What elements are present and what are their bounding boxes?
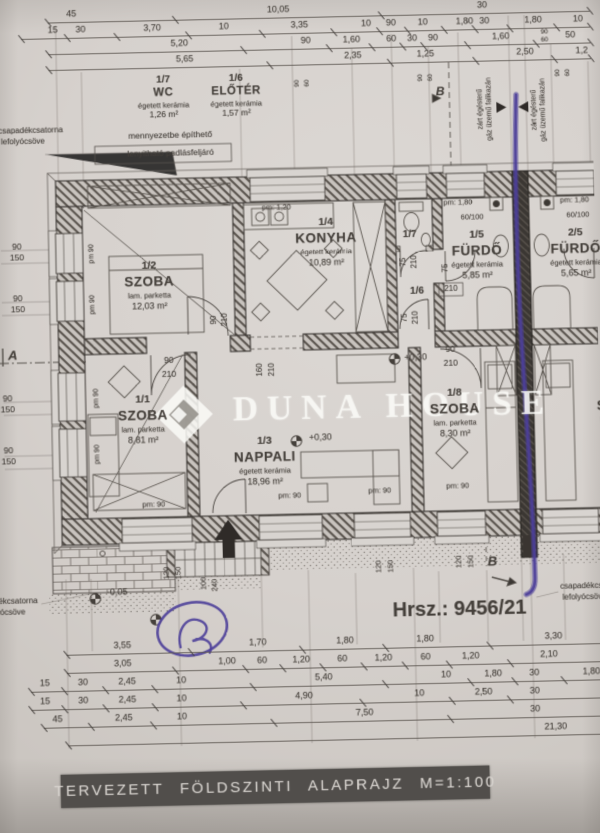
window-dim: 90 <box>4 446 14 455</box>
door-dim: 210 <box>443 358 457 367</box>
dimension-value: 3,70 <box>143 24 161 33</box>
drawing-title: TERVEZETT FÖLDSZINTI ALAPRAJZ M=1:100 <box>54 773 497 800</box>
dimension-value: 45 <box>66 10 76 19</box>
dimension-value: 5,65 <box>176 55 194 64</box>
dimension-value: 2,45 <box>119 695 137 704</box>
room-area: 8,30 m² <box>440 429 471 439</box>
room-area: 1,26 m² <box>149 110 178 119</box>
room-name: SZOBA <box>597 398 600 413</box>
sill-height: pm: 90 <box>368 486 391 494</box>
dimension-value: 30 <box>407 34 417 43</box>
door-dim: 75 <box>441 264 449 273</box>
room-name: SZOBA <box>124 274 174 289</box>
window-dim: 90 <box>555 69 562 76</box>
door-dim: 90 <box>164 356 174 365</box>
door-dim: 210 <box>162 369 176 378</box>
note-drainpipe-topleft-1: csapadékcsatorna <box>0 126 63 135</box>
dimension-value: 4,90 <box>295 691 313 700</box>
step-dim: 100 <box>199 577 207 590</box>
room-number-16: 1/6 <box>410 287 424 297</box>
section-marker-b-bottom: B <box>488 554 498 567</box>
dimension-value: 10,05 <box>267 5 290 14</box>
dimension-value: 5,40 <box>315 673 333 682</box>
dimension-value: 3,30 <box>545 631 563 640</box>
window-dim: 90 <box>541 29 548 36</box>
dimension-value: 2,10 <box>540 650 558 659</box>
note-drainpipe-bottomright-1: csapadékcsatorna <box>560 581 600 590</box>
plan-sheet: DUNA HOUSE csapadékcsatornalefolyócsövem… <box>0 0 600 833</box>
room-number: 1/4 <box>318 217 333 228</box>
dimension-value: 7,50 <box>356 708 374 717</box>
dimension-value: 45 <box>52 715 62 724</box>
door-dim: 210 <box>221 313 229 326</box>
dimension-value: 2,45 <box>118 677 136 686</box>
wall-opening-dashed <box>250 336 303 349</box>
room-name: KONYHA <box>295 230 357 245</box>
room-material: égetett kerámia <box>550 258 600 267</box>
dimension-value: 90 <box>301 36 311 45</box>
room-number: 1/3 <box>257 435 272 446</box>
window-dim: 150 <box>467 555 475 568</box>
door-dim: 210 <box>410 255 418 268</box>
dimension-value: 1,70 <box>249 638 267 647</box>
room-material: égetett kerámia <box>239 466 291 475</box>
door-dim: 160 <box>256 363 264 377</box>
room-material: lam. parketta <box>433 418 477 426</box>
sill-height: pm 90 <box>93 389 100 409</box>
sill-height: pm: 1,20 <box>262 203 291 211</box>
dimension-value: 15 <box>48 26 58 35</box>
window-dim: 150 <box>174 567 182 580</box>
note-drainpipe-bottomleft-1: csapadékcsatorna <box>0 597 38 606</box>
room-area: 12,03 m² <box>132 302 168 312</box>
note-drainpipe-topleft-2: lefolyócsöve <box>1 138 45 147</box>
room-area: 10,89 m² <box>309 258 345 268</box>
window-dim: 150 <box>10 253 24 262</box>
sill-height: pm 90 <box>88 244 95 264</box>
room-number: 2/5 <box>568 227 583 238</box>
room-number: 1/7 <box>156 75 170 85</box>
room-name: ELŐTÉR <box>211 86 261 98</box>
room-name: SZOBA <box>430 401 480 416</box>
dimension-value: 1,60 <box>343 35 361 44</box>
note-boiler-right-1: zárt égésterű <box>530 90 538 131</box>
sill-height: pm 90 <box>94 445 101 465</box>
dimension-value: 5,20 <box>170 39 188 48</box>
door-dim: 75 <box>399 258 407 267</box>
dimension-value: 60 <box>337 654 347 663</box>
dimension-value: 1,80 <box>416 634 434 643</box>
window-dim: 90 <box>418 74 425 81</box>
dimension-value: 30 <box>78 696 88 705</box>
room-number: 1/1 <box>135 394 150 405</box>
note-attic-1: mennyezetbe építhető <box>128 130 212 140</box>
dimension-value: 10 <box>418 18 428 27</box>
room-area: 5,85 m² <box>462 271 493 281</box>
dimension-value: 30 <box>530 704 540 713</box>
dimension-value: 1,80 <box>484 669 502 678</box>
sill-height: pm 90 <box>89 295 96 315</box>
dimension-value: 2,50 <box>516 47 534 56</box>
dimension-value: 30 <box>479 16 489 25</box>
dimension-value: 10 <box>177 712 187 721</box>
window-dim: 60 <box>428 74 435 81</box>
window-dim: 60 <box>565 69 572 76</box>
room-name: SZOBA <box>118 408 168 423</box>
dimension-value: 60 <box>420 652 430 661</box>
section-marker-b-top: B <box>436 85 445 97</box>
window-dim: 150 <box>1 405 15 414</box>
sill-height: pm: 1,80 <box>560 196 589 204</box>
room-area: 5,65 m² <box>561 268 592 278</box>
floorplan-photo: DUNA HOUSE csapadékcsatornalefolyócsövem… <box>0 0 600 833</box>
dimension-value: 1,60 <box>492 32 510 41</box>
dimension-value: 1,80 <box>456 17 474 26</box>
dimension-value: 50 <box>565 30 575 39</box>
dimension-value: 15 <box>40 679 50 688</box>
room-number: 1/6 <box>229 74 243 84</box>
step-dim: 240 <box>211 579 219 592</box>
level-mark: +0,30 <box>404 353 427 362</box>
window-dim: 150 <box>386 560 394 573</box>
plot-number: Hrsz.: 9456/21 <box>392 597 526 620</box>
window-dim: 150 <box>2 457 16 466</box>
dimension-value: 1,25 <box>417 49 435 58</box>
room-name: WC <box>153 87 173 99</box>
window-dim: 150 <box>11 305 25 314</box>
note-drainpipe-bottomright-2: lefolyócsöve <box>562 593 600 602</box>
note-attic-2: lenyitható padlásfeljáró <box>127 148 214 158</box>
room-number: 1/5 <box>469 229 484 240</box>
dimension-value: 21,30 <box>544 722 567 732</box>
window-dim: 120 <box>374 560 382 573</box>
door-dim: 210 <box>268 363 276 377</box>
extension-lines <box>0 14 600 750</box>
dimension-value: 15 <box>40 697 50 706</box>
window-dim: 120 <box>162 567 170 580</box>
door-dim: 90 <box>446 344 456 353</box>
dimension-value: 10 <box>361 19 371 28</box>
room-name: NAPPALI <box>234 449 296 464</box>
window-dim: 90 <box>3 394 13 403</box>
door-dim: 75 <box>401 313 409 322</box>
dimension-value: 90 <box>428 33 438 42</box>
dimension-value: 30 <box>529 668 539 677</box>
dimension-value: 60 <box>386 34 396 43</box>
dimension-value: 1,00 <box>218 657 236 666</box>
room-material: égetett kerámia <box>451 260 503 269</box>
room-material: lam. parketta <box>121 425 165 433</box>
dimension-value: 10 <box>176 694 186 703</box>
dimension-value: 10 <box>414 689 424 698</box>
dimension-value: 1,20 <box>375 653 393 662</box>
dimension-value: 30 <box>477 1 487 10</box>
dimension-value: 2,45 <box>115 713 133 722</box>
sill-height: pm: 90 <box>446 482 469 490</box>
dimension-value: 30 <box>75 25 85 34</box>
window-dim: 60/100 <box>461 213 484 221</box>
door-dim: 210 <box>444 285 458 293</box>
note-drainpipe-bottomleft-2: lefolyócsöve <box>0 608 26 617</box>
dimension-value: 3,05 <box>114 659 132 668</box>
room-area: 1,57 m² <box>222 108 251 117</box>
dimension-value: 1,20 <box>292 655 310 664</box>
room-area: 18,96 m² <box>247 477 283 487</box>
window-dim: 120 <box>455 555 463 568</box>
window-dim: 60/100 <box>566 210 589 218</box>
room-number: 1/8 <box>447 387 462 398</box>
level-mark: +0,30 <box>309 433 332 442</box>
dimension-value: 1,80 <box>336 636 354 645</box>
dimension-value: 1,20 <box>462 651 480 660</box>
room-material: égetett kerámia <box>300 247 352 256</box>
dimension-value: 60 <box>257 656 267 665</box>
sill-height: pm: 90 <box>278 491 301 499</box>
window-dim: 90 <box>13 294 23 303</box>
dimension-value: 10 <box>441 670 451 679</box>
dimension-value: 2,35 <box>344 51 362 60</box>
dimension-value: 10 <box>219 22 229 31</box>
section-marker-a: A <box>8 349 18 362</box>
sill-height: pm: 1,80 <box>443 198 472 206</box>
room-name: FÜRDŐ <box>550 241 600 256</box>
room-material: lam. parketta <box>128 291 171 299</box>
sill-height: pm: 90 <box>142 500 165 508</box>
window-dim: 90 <box>294 80 301 87</box>
window-dim: 60 <box>304 80 311 87</box>
dimension-value: 10 <box>176 676 186 685</box>
room-number-17: 1/7 <box>403 230 417 240</box>
note-boiler-left-1: zárt égésterű <box>477 89 485 130</box>
dimension-value: 90 <box>386 18 396 27</box>
dimension-value: 1,2 <box>575 46 588 55</box>
dimension-value: 30 <box>78 678 88 687</box>
door-dim: 210 <box>411 311 419 324</box>
door-dim: 90 <box>210 315 218 324</box>
level-mark: -0,05 <box>107 588 128 597</box>
dimension-value: 1,80 <box>583 667 600 676</box>
dimension-value: 3,55 <box>113 641 131 650</box>
watermark-text: DUNA HOUSE <box>232 383 553 430</box>
room-number: 1/2 <box>141 260 156 271</box>
dimension-value: 3,35 <box>291 20 309 29</box>
boiler-pointer-icons <box>496 101 528 113</box>
dimension-value: 30 <box>530 686 540 695</box>
dimension-value: 1,80 <box>524 15 542 24</box>
window-dim: 90 <box>12 242 22 251</box>
dimension-value: 2,50 <box>475 687 493 696</box>
dimension-value: 10 <box>573 14 583 23</box>
room-area: 8,81 m² <box>128 436 159 446</box>
room-name: FÜRDŐ <box>452 243 503 258</box>
